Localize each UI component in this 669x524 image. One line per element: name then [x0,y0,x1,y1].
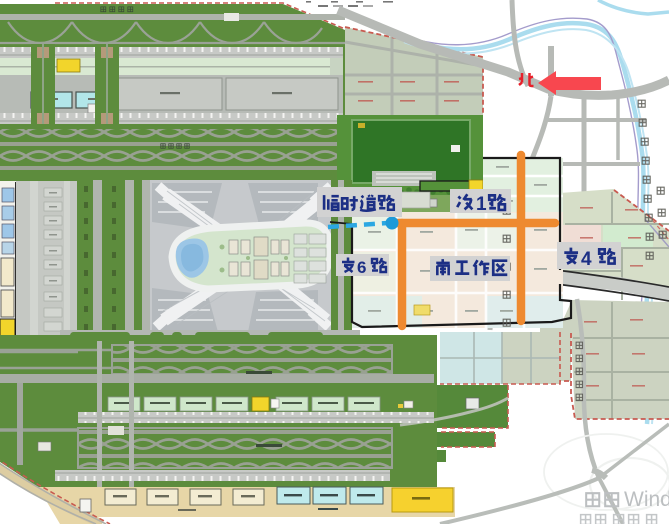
svg-text:Wind: Wind [624,488,669,511]
svg-text:6: 6 [357,258,366,277]
svg-text:4: 4 [581,249,592,270]
svg-text:1: 1 [476,194,487,215]
